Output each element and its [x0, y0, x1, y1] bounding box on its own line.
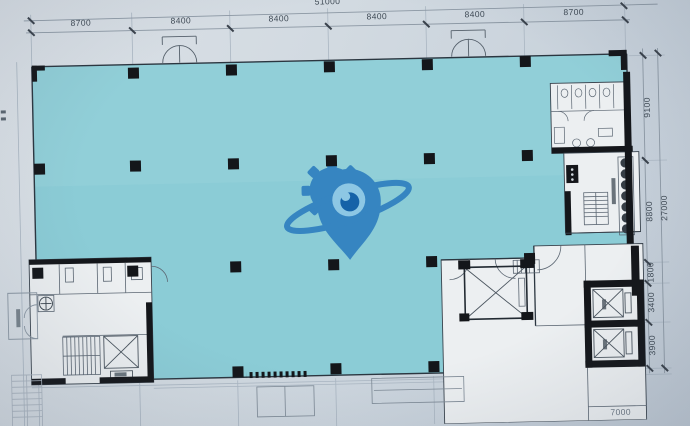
dim-top-4: 8400: [366, 11, 387, 21]
dim-top-6: 8700: [563, 7, 584, 17]
column-marker: [232, 366, 243, 377]
dim-bottom-partial: 7000: [610, 407, 631, 417]
entrance-door-icon: [451, 30, 486, 57]
illegible-label: [16, 309, 20, 327]
illegible-label: [114, 372, 126, 376]
dim-right-1: 9100: [642, 92, 653, 122]
column-marker: [127, 265, 138, 276]
column-marker: [325, 155, 336, 166]
dim-top-5: 8400: [464, 9, 485, 19]
dim-total-right: 27000: [659, 193, 670, 223]
column-marker: [230, 261, 241, 272]
column-marker: [323, 61, 334, 72]
illegible-label: [603, 339, 607, 349]
column-marker: [428, 360, 439, 371]
column-marker: [421, 59, 432, 70]
dim-right-3: 1800: [645, 257, 656, 287]
column-marker: [330, 363, 341, 374]
dim-top-3: 8400: [268, 13, 289, 23]
column-marker: [423, 153, 434, 164]
column-marker: [129, 160, 140, 171]
column-marker: [426, 256, 437, 267]
entrance-door-icon: [162, 36, 197, 63]
column-marker: [32, 267, 43, 278]
fan-icon: [39, 297, 52, 310]
column-marker: [127, 67, 138, 78]
watermark-logo: [259, 138, 438, 292]
blueprint-photo: 51000 8700 8400 8400 8400 8400 8700 9100…: [0, 0, 690, 426]
column-marker: [523, 252, 534, 263]
dim-top-2: 8400: [170, 15, 191, 25]
core-block-right: [441, 244, 647, 424]
column-marker: [227, 158, 238, 169]
illegible-label: [1, 110, 6, 113]
column-marker: [519, 55, 530, 66]
illegible-label: [611, 178, 616, 204]
illegible-label: [602, 299, 606, 309]
illegible-label: [1, 117, 6, 120]
dim-total-top: 51000: [315, 0, 341, 7]
dim-right-4: 3400: [646, 287, 657, 317]
dim-top-1: 8700: [70, 17, 91, 27]
dim-right-2: 8800: [644, 196, 655, 226]
column-marker: [521, 149, 532, 160]
column-marker: [225, 64, 236, 75]
core-block-left: [29, 257, 170, 385]
floor-plan-drawing: 51000 8700 8400 8400 8400 8400 8700 9100…: [0, 0, 690, 426]
dim-right-5: 3900: [647, 330, 658, 360]
washroom-block: [550, 82, 633, 154]
column-marker: [328, 259, 339, 270]
column-marker: [33, 163, 44, 174]
